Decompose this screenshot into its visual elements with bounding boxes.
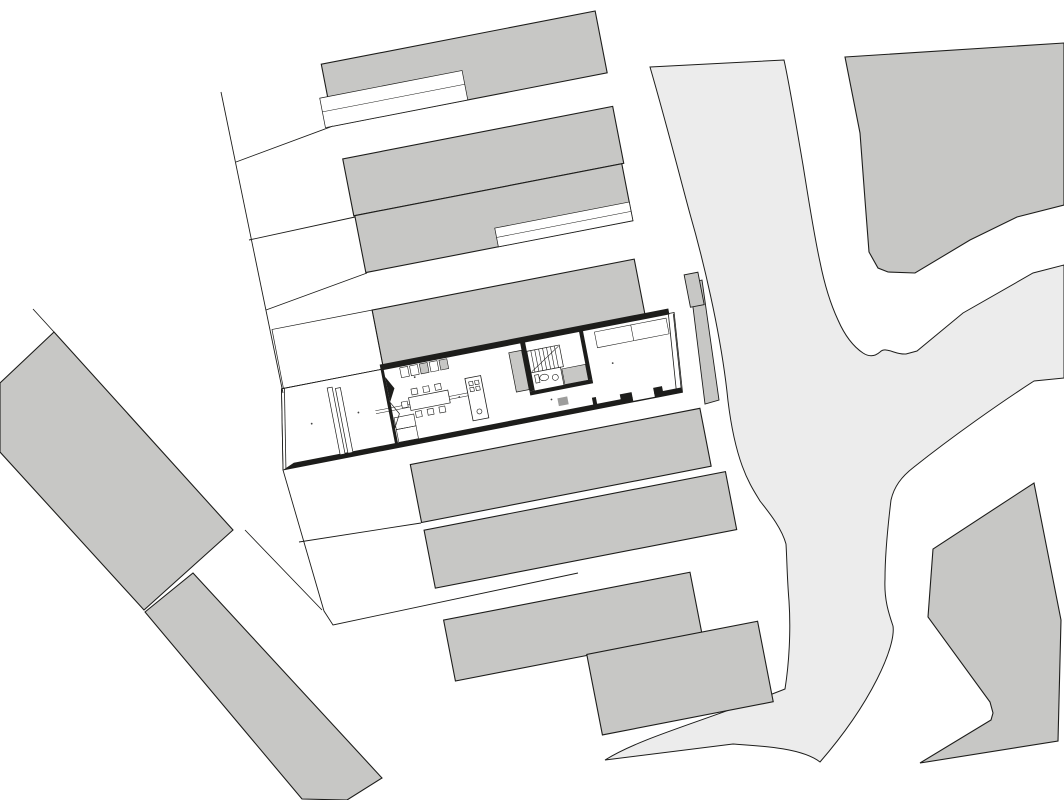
plot-line-upper-left — [221, 92, 283, 393]
kitchen-counter-3 — [419, 363, 429, 374]
left-building-upper — [0, 332, 233, 610]
chair-6 — [439, 406, 446, 413]
chair-4 — [415, 411, 422, 418]
chair-2 — [423, 386, 430, 393]
kitchen-counter-4 — [429, 361, 439, 372]
site-plan-drawing — [0, 0, 1064, 800]
site-plan-stage — [0, 0, 1064, 800]
kitchen-counter-5 — [439, 359, 449, 370]
kitchen-counter-2 — [409, 364, 419, 375]
plot-line-gap-2 — [249, 217, 355, 240]
plot-line-south-garden — [299, 523, 421, 542]
parcel-bottom-right — [920, 483, 1061, 763]
left-building-lower — [145, 573, 382, 800]
plot-line-converging — [245, 530, 322, 610]
plot-line-gap-3 — [266, 273, 367, 310]
chair-7 — [401, 401, 408, 408]
row-north-1-corner — [684, 272, 704, 307]
chair-5 — [427, 408, 434, 415]
plot-line-apex — [33, 309, 54, 332]
plot-line-gap-1 — [236, 126, 333, 162]
kitchen-counter-1 — [400, 366, 410, 377]
chair-3 — [434, 383, 441, 390]
chair-1 — [411, 388, 418, 395]
parcel-top-right — [845, 43, 1064, 273]
